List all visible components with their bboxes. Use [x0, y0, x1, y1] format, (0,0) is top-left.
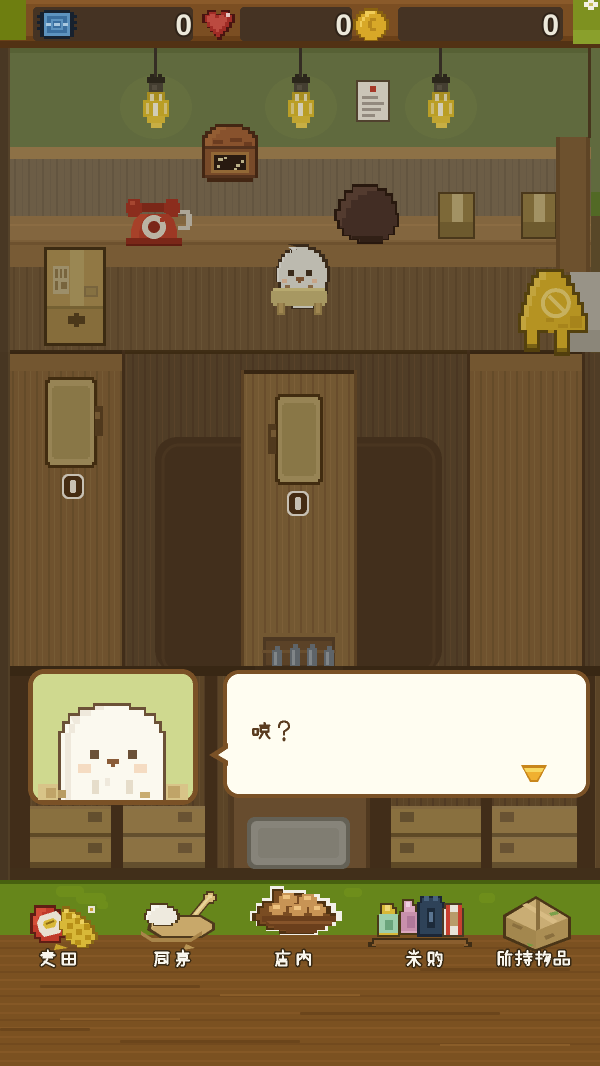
svg-text:0: 0 — [175, 9, 192, 42]
svg-text:0: 0 — [542, 9, 559, 42]
svg-text:0: 0 — [335, 9, 352, 42]
